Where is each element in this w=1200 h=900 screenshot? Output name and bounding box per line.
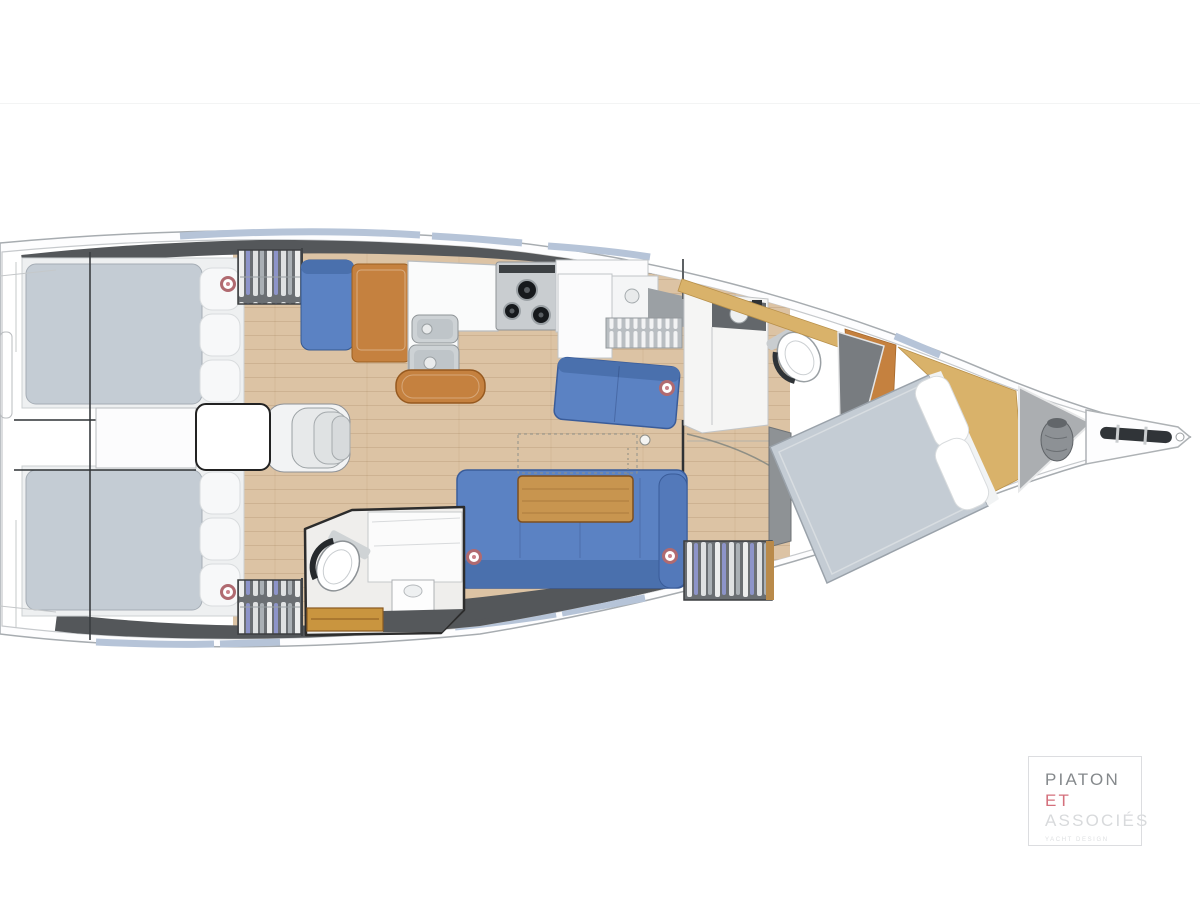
bag-opening — [1047, 418, 1067, 428]
locker-wood-edge — [766, 541, 774, 600]
nav-seat-back — [301, 260, 354, 274]
logo-line2: ET — [1045, 791, 1141, 812]
burner-cap — [539, 313, 544, 318]
engine-box — [196, 404, 270, 470]
companionway-step — [332, 416, 350, 460]
washbasin — [404, 585, 422, 597]
sailboat-interior-plan — [0, 0, 1200, 900]
chart-table — [352, 264, 410, 362]
burner-cap — [510, 309, 515, 314]
dish-drainer — [606, 318, 682, 348]
porthole-center — [668, 554, 672, 558]
aft-head — [304, 507, 464, 635]
logo-line3: ASSOCIÉS — [1045, 811, 1141, 832]
pillow — [200, 518, 240, 560]
nav-station — [301, 260, 410, 362]
burner-cap — [524, 287, 530, 293]
pillow — [200, 360, 240, 402]
bow-fitting — [1176, 433, 1184, 441]
double-berth-mattress — [26, 470, 202, 610]
settee-back-roll — [457, 560, 687, 588]
pillow — [200, 314, 240, 356]
porthole-center — [226, 590, 230, 594]
double-berth-mattress — [26, 264, 202, 404]
settee-armrest — [659, 474, 687, 588]
stove-back-rail — [499, 265, 555, 273]
logo-line1: PIATON — [1045, 770, 1141, 791]
pillow — [200, 472, 240, 514]
hanging-locker — [684, 541, 772, 600]
sink-drain — [424, 357, 436, 369]
pillow — [200, 564, 240, 606]
fridge-top — [558, 274, 612, 358]
engine-front-panel — [96, 408, 196, 468]
shower-panel — [368, 512, 462, 582]
saloon-hanging-locker — [684, 541, 774, 600]
companionway — [96, 404, 350, 472]
sink-drain — [422, 324, 432, 334]
yacht-floorplan-page: PIATON ET ASSOCIÉS YACHT DESIGN — [0, 0, 1200, 900]
mast-foot — [640, 435, 650, 445]
porthole-center — [226, 282, 230, 286]
designer-logo: PIATON ET ASSOCIÉS YACHT DESIGN — [1028, 756, 1142, 846]
porthole-center — [472, 555, 476, 559]
saloon-table — [518, 476, 633, 522]
porthole-center — [665, 386, 669, 390]
prep-sink — [625, 289, 639, 303]
logo-tagline: YACHT DESIGN — [1045, 837, 1141, 843]
